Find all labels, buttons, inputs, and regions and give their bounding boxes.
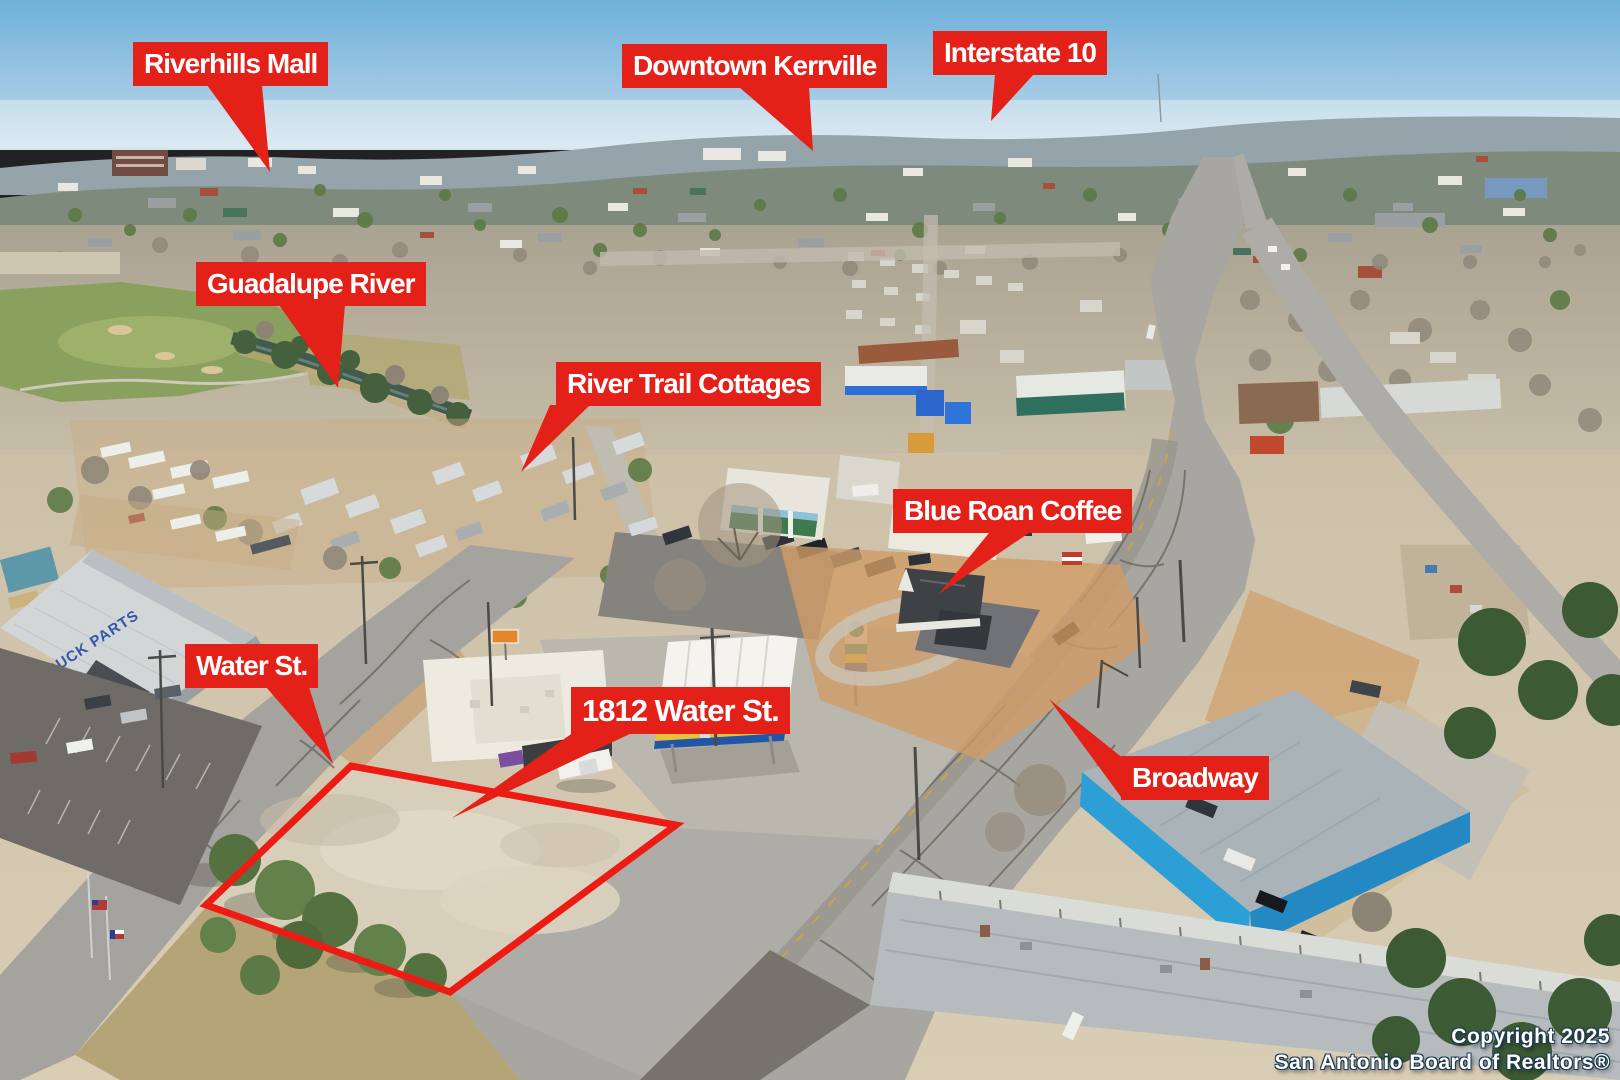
callout-guadalupe-river: Guadalupe River (196, 262, 426, 306)
brick-building (1238, 381, 1319, 424)
callout-interstate-10: Interstate 10 (933, 31, 1107, 75)
callout-water-st: Water St. (185, 644, 318, 688)
bare-tree (698, 483, 782, 567)
annotated-aerial-photo: TO & TRUCK PARTS (0, 0, 1620, 1080)
orange-sign (492, 630, 518, 643)
callout-broadway: Broadway (1121, 756, 1269, 800)
callout-1812-water-st: 1812 Water St. (571, 687, 790, 734)
aerial-photo-background: TO & TRUCK PARTS (0, 0, 1620, 1080)
copyright-line1: Copyright 2025 (1275, 1024, 1610, 1050)
callout-downtown-kerrville: Downtown Kerrville (622, 44, 887, 88)
yellow-truck (908, 433, 934, 453)
callout-river-trail-cottages: River Trail Cottages (556, 362, 821, 406)
blue-awning-store (845, 386, 927, 395)
copyright-notice: Copyright 2025 San Antonio Board of Real… (1275, 1024, 1610, 1076)
callout-riverhills-mall: Riverhills Mall (133, 42, 328, 86)
callout-blue-roan-coffee: Blue Roan Coffee (893, 489, 1132, 533)
downtown-courthouse (703, 148, 741, 160)
copyright-line2: San Antonio Board of Realtors® (1275, 1050, 1610, 1076)
red-pavilion (1250, 436, 1284, 454)
riverhills-mall-building (112, 150, 168, 176)
white-van (852, 484, 879, 497)
